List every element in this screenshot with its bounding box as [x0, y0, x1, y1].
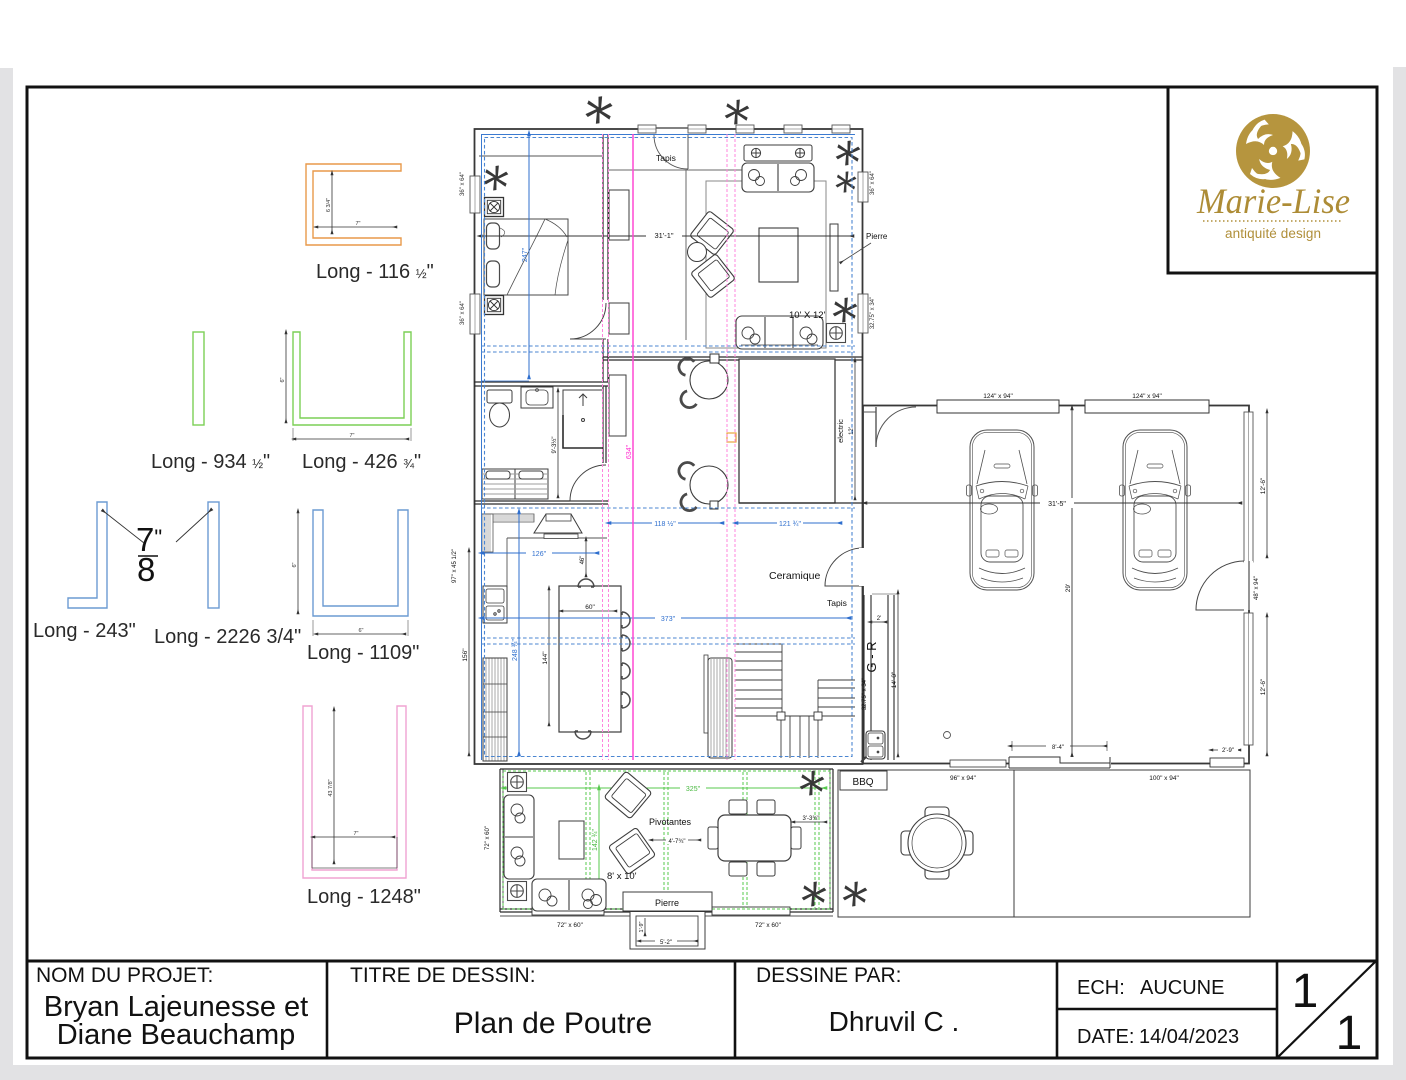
svg-text:142 ¾": 142 ¾" — [592, 829, 599, 851]
svg-text:Pierre: Pierre — [655, 898, 679, 908]
svg-text:29': 29' — [1065, 584, 1072, 592]
svg-text:118 ½": 118 ½" — [654, 520, 676, 528]
svg-text:43 7/8": 43 7/8" — [328, 779, 334, 796]
svg-text:60": 60" — [585, 604, 595, 611]
svg-text:12'-6": 12'-6" — [1260, 678, 1267, 695]
svg-text:124" x 94": 124" x 94" — [983, 393, 1013, 400]
svg-text:72" x 60": 72" x 60" — [557, 922, 584, 929]
svg-text:antiquité design: antiquité design — [1225, 226, 1321, 241]
svg-text:1: 1 — [1292, 965, 1319, 1018]
svg-text:126": 126" — [532, 551, 547, 558]
svg-text:Pierre: Pierre — [866, 232, 888, 241]
svg-text:32.75" x 34": 32.75" x 34" — [870, 297, 876, 329]
svg-text:G - R: G - R — [864, 641, 879, 672]
svg-text:Long - 1248": Long - 1248" — [307, 886, 421, 908]
svg-text:7": 7" — [349, 433, 354, 439]
svg-text:Tapis: Tapis — [827, 598, 847, 608]
svg-text:8: 8 — [137, 551, 155, 588]
svg-text:121 ¾": 121 ¾" — [779, 521, 801, 528]
svg-text:373": 373" — [661, 616, 676, 623]
svg-text:100" x 94": 100" x 94" — [1149, 775, 1179, 782]
svg-text:247": 247" — [522, 247, 529, 262]
svg-text:Ceramique: Ceramique — [769, 570, 821, 582]
svg-text:7": 7" — [353, 831, 358, 837]
svg-text:Tapis: Tapis — [656, 153, 676, 163]
svg-text:10' X 12': 10' X 12' — [789, 310, 826, 321]
svg-text:electric: electric — [836, 419, 845, 443]
svg-text:DESSINE PAR:: DESSINE PAR: — [756, 964, 901, 987]
svg-text:124" x 94": 124" x 94" — [1132, 393, 1162, 400]
svg-text:36" x 64": 36" x 64" — [870, 171, 876, 195]
svg-text:248 ¾": 248 ¾" — [512, 639, 519, 661]
svg-text:72" x 60": 72" x 60" — [485, 826, 491, 850]
svg-text:2'-9": 2'-9" — [1222, 748, 1234, 754]
svg-text:6": 6" — [280, 377, 286, 382]
svg-text:325": 325" — [686, 786, 701, 793]
svg-text:6": 6" — [358, 628, 363, 634]
svg-text:Long - 1109": Long - 1109" — [307, 642, 419, 664]
svg-text:NOM DU PROJET:: NOM DU PROJET: — [36, 964, 213, 987]
svg-text:634": 634" — [626, 444, 633, 459]
svg-text:3'-3¾": 3'-3¾" — [803, 816, 820, 822]
svg-text:Marie-Lise: Marie-Lise — [1196, 181, 1350, 221]
svg-text:36" x 64": 36" x 64" — [460, 172, 466, 196]
svg-text:8'-4": 8'-4" — [1052, 745, 1064, 751]
svg-text:32.75" x 34": 32.75" x 34" — [862, 678, 868, 710]
svg-text:156": 156" — [462, 648, 469, 662]
svg-text:AUCUNE: AUCUNE — [1140, 977, 1224, 999]
svg-text:4'-7¾": 4'-7¾" — [669, 839, 686, 845]
svg-text:TITRE DE DESSIN:: TITRE DE DESSIN: — [350, 964, 536, 987]
svg-text:BBQ: BBQ — [852, 777, 873, 788]
svg-text:DATE:: DATE: — [1077, 1026, 1134, 1048]
svg-text:7": 7" — [355, 221, 360, 227]
svg-text:36" x 64": 36" x 64" — [460, 301, 466, 325]
svg-text:5'-2": 5'-2" — [660, 940, 672, 946]
svg-text:144": 144" — [542, 651, 549, 665]
svg-text:6": 6" — [292, 562, 298, 567]
svg-text:14/04/2023: 14/04/2023 — [1139, 1026, 1239, 1048]
svg-text:96" x 94": 96" x 94" — [950, 775, 977, 782]
svg-text:ECH:: ECH: — [1077, 977, 1125, 999]
svg-text:1'-9": 1'-9" — [639, 921, 645, 932]
svg-text:72" x 60": 72" x 60" — [755, 922, 782, 929]
svg-text:31'-5": 31'-5" — [1048, 501, 1066, 508]
svg-text:Plan de Poutre: Plan de Poutre — [454, 1007, 652, 1040]
svg-text:31'-1": 31'-1" — [654, 231, 673, 240]
svg-text:46": 46" — [580, 556, 586, 565]
svg-text:6 3/4": 6 3/4" — [326, 198, 332, 212]
svg-text:Dhruvil C .: Dhruvil C . — [829, 1006, 960, 1037]
svg-text:97" x 45 1/2": 97" x 45 1/2" — [452, 549, 458, 583]
svg-text:1: 1 — [1336, 1007, 1363, 1060]
svg-text:8' x 10': 8' x 10' — [607, 871, 637, 882]
svg-text:Pivotantes: Pivotantes — [649, 817, 692, 827]
svg-text:12'-6": 12'-6" — [1260, 477, 1267, 494]
svg-text:Long - 2226 3/4": Long - 2226 3/4" — [154, 626, 301, 648]
svg-text:9'-3½": 9'-3½" — [551, 437, 558, 454]
svg-text:Diane Beauchamp: Diane Beauchamp — [57, 1019, 296, 1051]
svg-text:48" x 94": 48" x 94" — [1254, 576, 1260, 600]
svg-text:14'-0": 14'-0" — [891, 671, 898, 688]
svg-text:Long - 243": Long - 243" — [33, 620, 136, 642]
svg-text:2': 2' — [877, 616, 881, 622]
